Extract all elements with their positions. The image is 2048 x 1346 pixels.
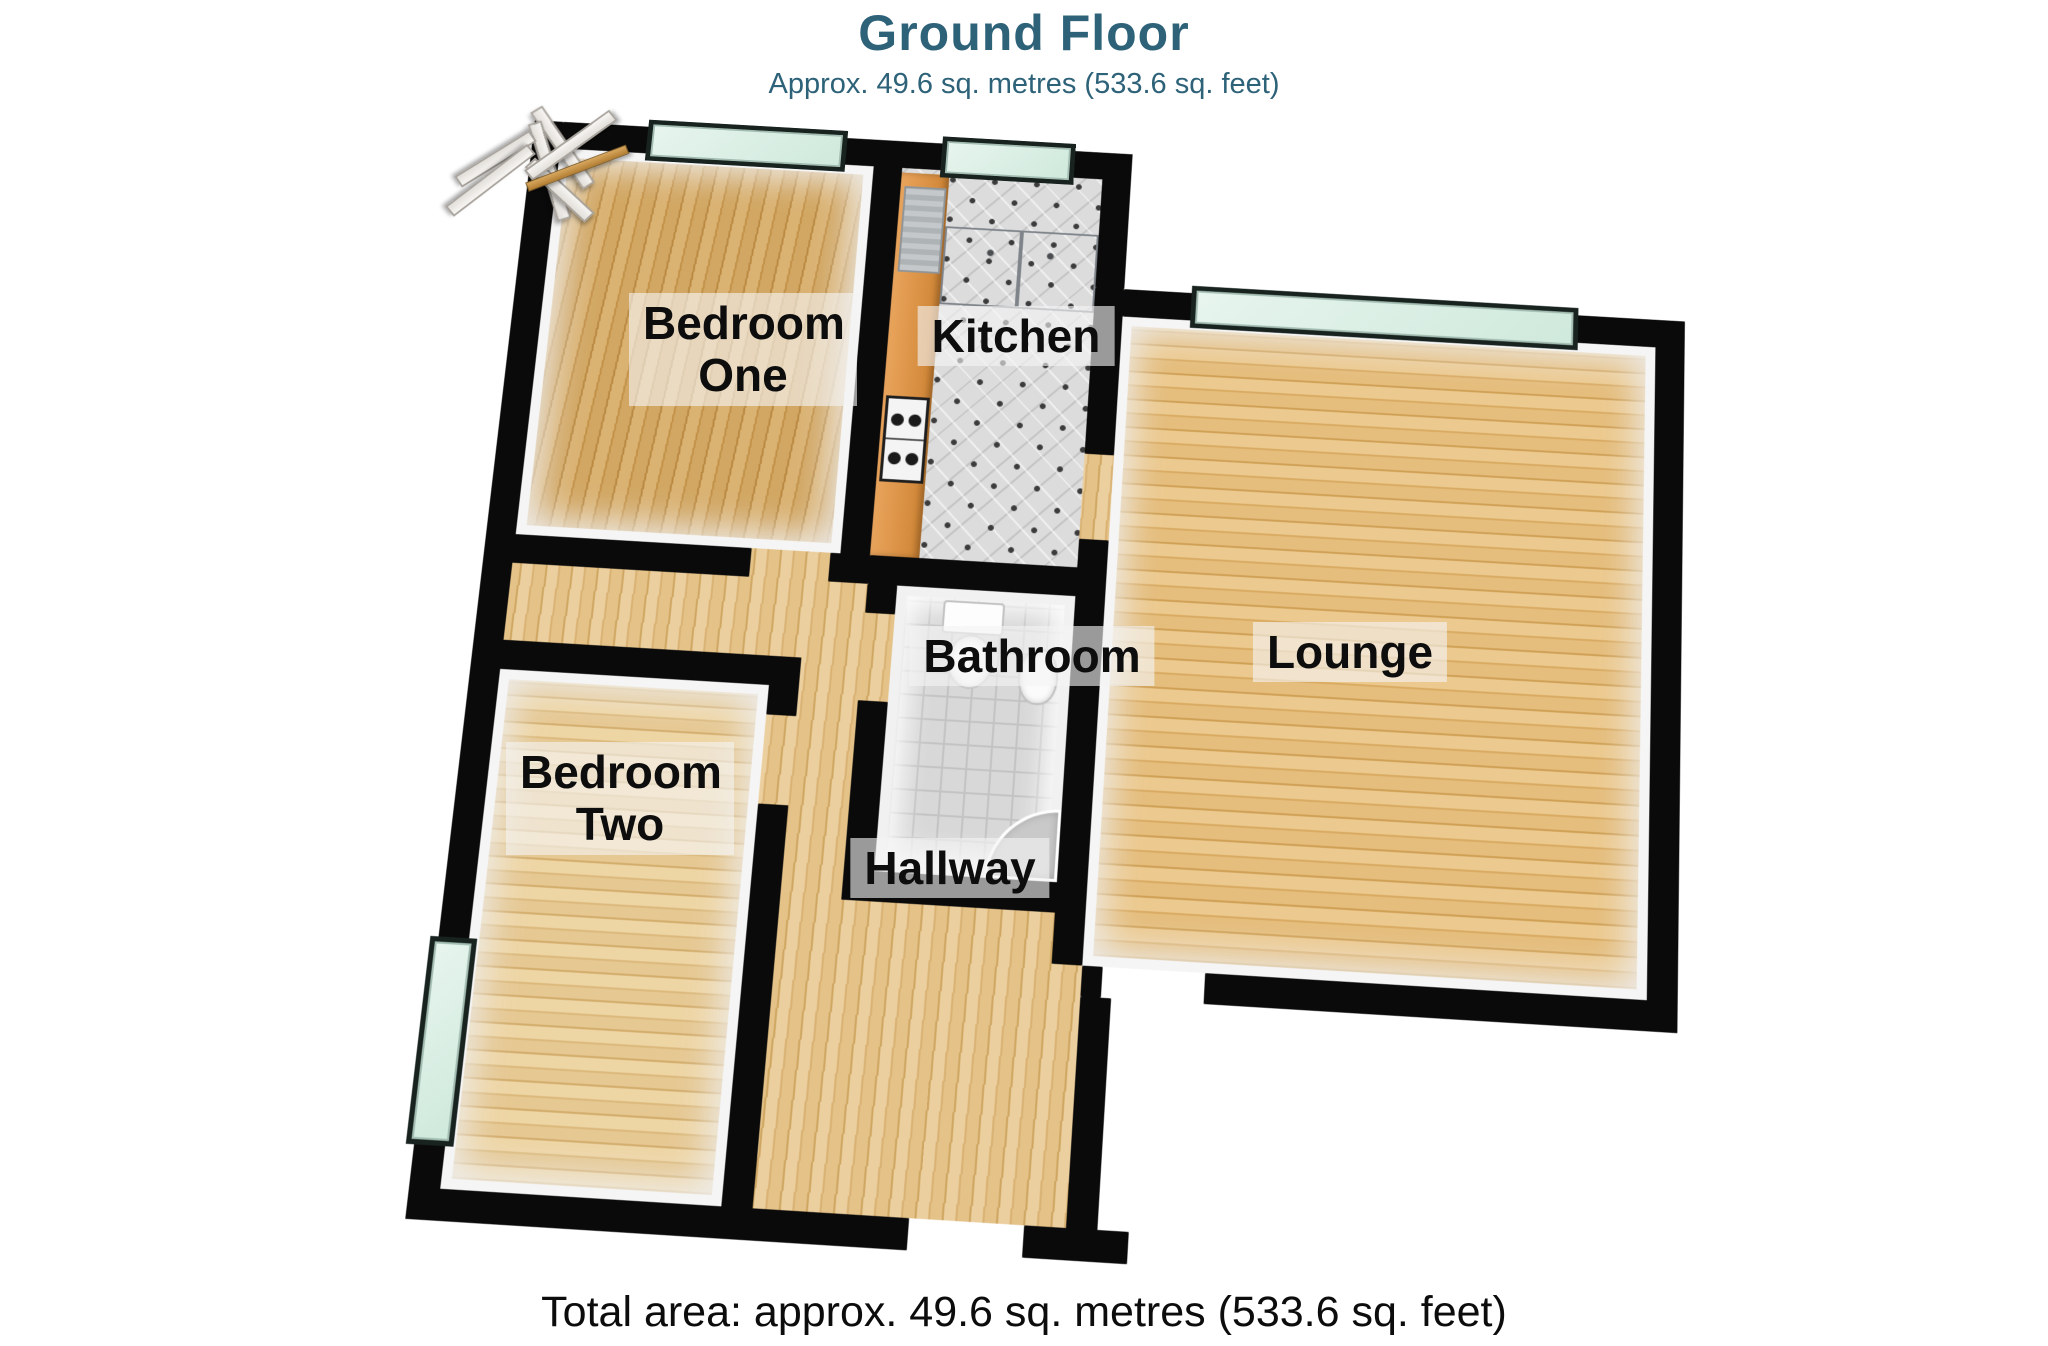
wall xyxy=(828,553,870,584)
wall xyxy=(766,656,801,716)
total-area-text: Total area: approx. 49.6 sq. metres (533… xyxy=(0,1288,2048,1337)
kitchen-cabinets xyxy=(939,226,1098,313)
room-label-kitchen: Kitchen xyxy=(918,306,1115,366)
wall xyxy=(865,584,897,615)
page-subtitle: Approx. 49.6 sq. metres (533.6 sq. feet) xyxy=(0,68,2048,101)
gas-hob xyxy=(879,395,930,484)
floorplan-page: { "header": { "title": "Ground Floor", "… xyxy=(0,0,2048,1346)
floorplan-3d xyxy=(403,103,1725,1323)
plan-header: Ground Floor Approx. 49.6 sq. metres (53… xyxy=(0,4,2048,101)
room-label-bedroom-two: Bedroom Two xyxy=(506,742,734,855)
room-label-bedroom-one: Bedroom One xyxy=(629,293,857,406)
page-title: Ground Floor xyxy=(0,4,2048,62)
room-label-bathroom: Bathroom xyxy=(909,626,1154,686)
radiator xyxy=(897,186,946,274)
wall xyxy=(1080,966,1102,998)
room-label-hallway: Hallway xyxy=(850,838,1049,898)
kitchen-window xyxy=(940,136,1076,184)
room-label-lounge: Lounge xyxy=(1253,622,1447,682)
